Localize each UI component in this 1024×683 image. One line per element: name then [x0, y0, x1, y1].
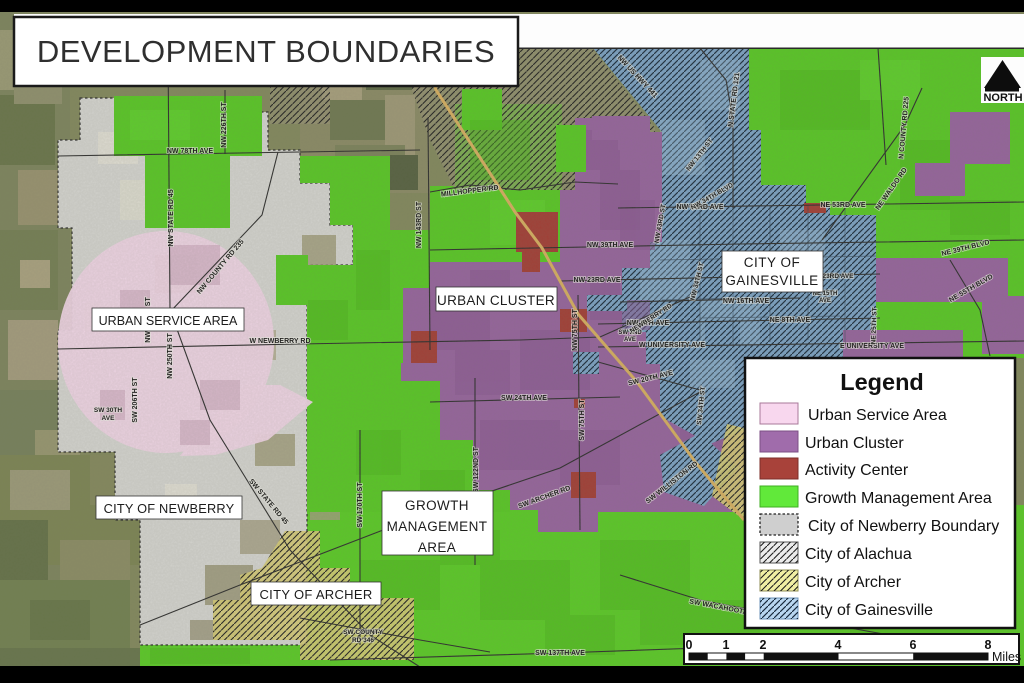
svg-text:URBAN SERVICE AREA: URBAN SERVICE AREA — [99, 314, 238, 328]
svg-text:URBAN CLUSTER: URBAN CLUSTER — [437, 293, 555, 308]
svg-text:CITY OF NEWBERRY: CITY OF NEWBERRY — [104, 501, 235, 516]
svg-text:Urban Cluster: Urban Cluster — [805, 435, 904, 452]
svg-text:Activity Center: Activity Center — [805, 462, 909, 479]
svg-text:4: 4 — [835, 638, 842, 652]
svg-text:Miles: Miles — [992, 650, 1021, 664]
svg-text:0: 0 — [686, 638, 693, 652]
svg-text:1: 1 — [723, 638, 730, 652]
svg-text:Legend: Legend — [840, 369, 924, 395]
svg-text:City of Gainesville: City of Gainesville — [805, 602, 933, 619]
svg-text:City of Alachua: City of Alachua — [805, 546, 912, 563]
svg-text:8: 8 — [985, 638, 992, 652]
svg-text:NORTH: NORTH — [983, 92, 1022, 104]
svg-text:Urban Service Area: Urban Service Area — [808, 407, 947, 424]
svg-text:Growth Management Area: Growth Management Area — [805, 490, 992, 507]
svg-text:DEVELOPMENT BOUNDARIES: DEVELOPMENT BOUNDARIES — [37, 34, 495, 69]
svg-text:GROWTH: GROWTH — [405, 498, 469, 513]
svg-text:GAINESVILLE: GAINESVILLE — [725, 273, 818, 288]
svg-text:MANAGEMENT: MANAGEMENT — [387, 519, 488, 534]
svg-text:AREA: AREA — [418, 540, 456, 555]
svg-text:City of Newberry Boundary: City of Newberry Boundary — [808, 518, 999, 535]
svg-text:City of Archer: City of Archer — [805, 574, 902, 591]
svg-text:CITY OF ARCHER: CITY OF ARCHER — [259, 587, 372, 602]
svg-text:2: 2 — [760, 638, 767, 652]
svg-text:6: 6 — [910, 638, 917, 652]
svg-text:CITY OF: CITY OF — [744, 255, 801, 270]
